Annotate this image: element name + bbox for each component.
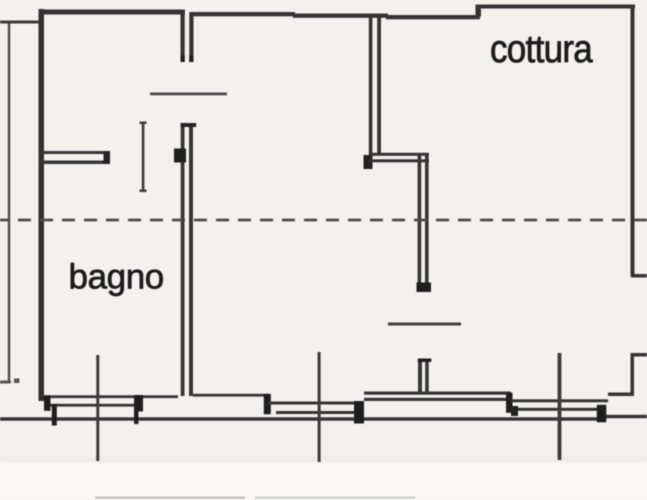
svg-text:cottura: cottura bbox=[490, 28, 593, 71]
svg-text:bagno: bagno bbox=[69, 258, 164, 297]
